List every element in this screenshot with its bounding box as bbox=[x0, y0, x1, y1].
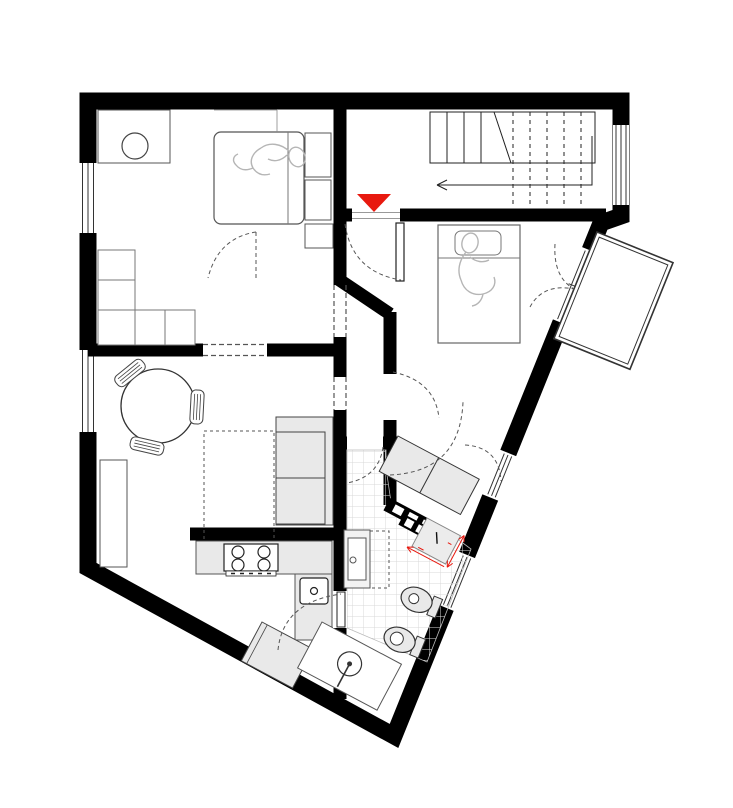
vanity bbox=[344, 530, 370, 588]
window-right-stairwell bbox=[613, 125, 629, 205]
kitchen-sink bbox=[300, 578, 328, 604]
stair-treads-dashed bbox=[513, 112, 581, 207]
balcony bbox=[554, 232, 673, 369]
window-diagonal-mid bbox=[481, 449, 518, 501]
entry-door-leaf bbox=[396, 223, 404, 281]
floor-plan-drawing bbox=[0, 0, 733, 808]
bedroom2-door-swing-arc bbox=[393, 372, 439, 418]
bedroom-1 bbox=[98, 110, 333, 345]
bed-foot-dresser bbox=[305, 224, 333, 248]
floor-plan bbox=[0, 0, 733, 808]
entrance bbox=[345, 194, 404, 281]
stove bbox=[224, 544, 278, 576]
entry-door-swing-arc bbox=[345, 224, 401, 280]
stool bbox=[122, 133, 148, 159]
sideboard bbox=[100, 460, 127, 567]
chair bbox=[190, 390, 205, 425]
window-left-upper bbox=[79, 163, 97, 233]
stair-cut-line bbox=[494, 112, 511, 163]
rug bbox=[204, 431, 274, 541]
nightstand-bottom bbox=[305, 180, 331, 220]
nightstand-top bbox=[305, 133, 331, 177]
sofa bbox=[276, 417, 333, 525]
bedroom-2 bbox=[393, 225, 520, 418]
bedroom1-door bbox=[208, 232, 256, 280]
entry-threshold bbox=[352, 213, 400, 219]
wardrobe bbox=[98, 250, 195, 345]
double-bed bbox=[214, 110, 333, 248]
entrance-marker-icon bbox=[357, 194, 391, 212]
window-left-lower bbox=[79, 350, 97, 432]
stair-treads-solid bbox=[447, 112, 481, 163]
stairwell bbox=[430, 112, 595, 207]
